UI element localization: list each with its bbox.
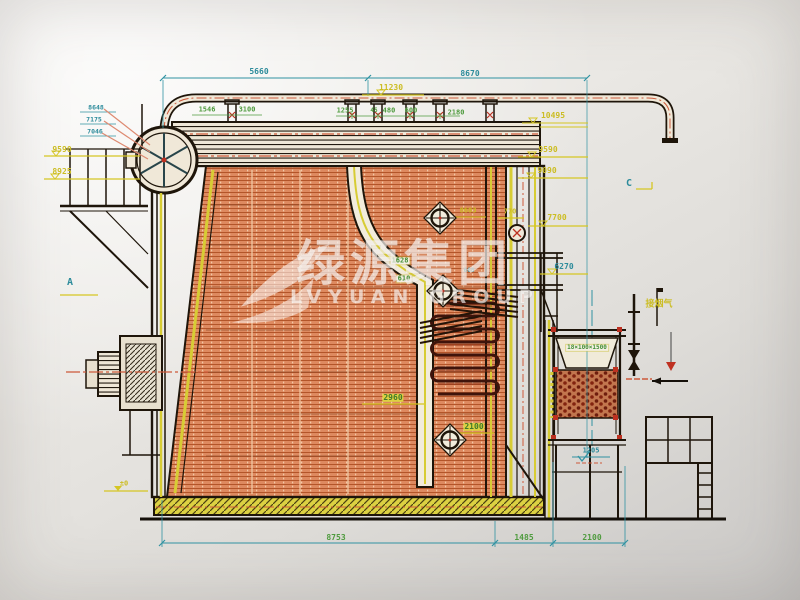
elev-7046: 7046 <box>87 129 103 136</box>
elev-9590-right: 9590 <box>538 146 557 154</box>
elev-10495: 10495 <box>541 112 565 120</box>
dim-2100-mid: 2100 <box>463 423 484 431</box>
elev-8925: 8925 <box>52 168 71 176</box>
dim-6270: 6270 <box>554 263 573 271</box>
dim-overall-right: 8670 <box>460 70 479 78</box>
elev-1205: 1205 <box>583 447 600 454</box>
elev-zero: ±0 <box>120 480 128 487</box>
dim-1628: 1628 <box>391 257 410 264</box>
dim-610: 610 <box>397 275 412 282</box>
label-layer: 5660867062701205AC6688648717570461123010… <box>0 0 800 600</box>
dim-480: 480 <box>383 107 396 114</box>
dim-2180: 2180 <box>448 109 465 116</box>
dim-45: 45 <box>370 108 377 114</box>
dim-2960: 2960 <box>382 394 403 402</box>
dim-668: 668 <box>464 268 475 274</box>
elev-11230: 11230 <box>379 84 403 92</box>
elev-7700: 7700 <box>547 214 566 222</box>
elev-9090: 9090 <box>537 167 556 175</box>
elev-9590-left: 9590 <box>52 146 71 154</box>
elev-7175: 7175 <box>86 117 102 124</box>
label-flue-outlet: 接烟气 <box>645 300 672 309</box>
dim-overall-left: 5660 <box>249 68 268 76</box>
dim-8603: 8603 <box>460 207 477 214</box>
elev-8648: 8648 <box>88 105 104 112</box>
photo-background: 5660867062701205AC6688648717570461123010… <box>0 0 800 600</box>
section-marker-c: C <box>626 179 632 190</box>
dim-1485: 1485 <box>514 534 533 542</box>
dim-8753: 8753 <box>326 534 345 542</box>
dim-3100: 3100 <box>239 106 256 113</box>
dim-2100-bottom: 2100 <box>582 534 601 542</box>
boiler-drawing: 5660867062701205AC6688648717570461123010… <box>0 0 800 600</box>
dim-1546: 1546 <box>199 106 216 113</box>
label-econ-spec: 18×100×1500 <box>566 345 608 351</box>
dim-1255: 1255 <box>337 107 354 114</box>
section-marker-a: A <box>67 278 73 289</box>
dim-770: 770 <box>504 208 517 215</box>
dim-600: 600 <box>405 107 418 114</box>
